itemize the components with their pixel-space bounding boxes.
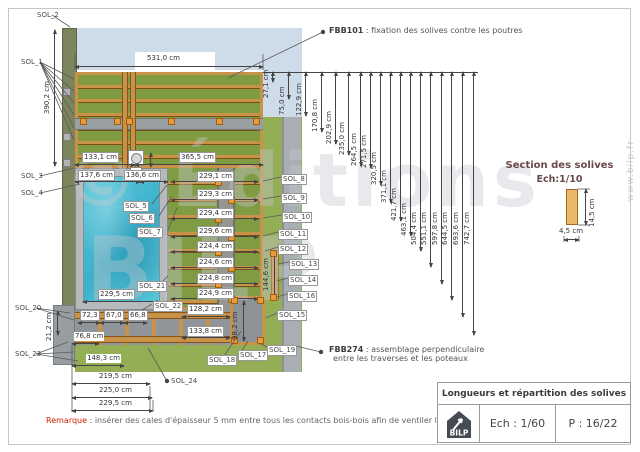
chain-dimension-line: [305, 72, 306, 116]
v-dimension-line: [243, 301, 244, 341]
label-sol_16: SOL_16: [287, 291, 317, 302]
joist-dimension-label: 224,9 cm: [197, 288, 234, 299]
label-sol_21: SOL_21: [137, 281, 167, 292]
watermark-url: www.bilp.fr: [626, 140, 636, 201]
label-sol_7: SOL_7: [137, 227, 163, 238]
chain-dimension-line: [348, 72, 349, 155]
label-sol_24: SOL_24: [170, 377, 198, 386]
label-sol_11: SOL_11: [278, 229, 308, 240]
v-dimension-label: 390,2 cm: [43, 76, 52, 114]
dimension-line: [135, 164, 263, 165]
label-sol_6: SOL_6: [129, 213, 155, 224]
chain-dimension-line: [272, 72, 273, 82]
dimension-label: 148,3 cm: [86, 354, 121, 363]
post-marker: [257, 297, 264, 304]
dimension-label: 4,5 cm: [558, 227, 584, 236]
label-sol_20: SOL_20: [14, 304, 42, 313]
dimension-line: [124, 322, 147, 323]
chain-dimension-line: [288, 72, 289, 99]
v-dimension-label: 144,6 cm: [262, 253, 271, 291]
label-sol_17: SOL_17: [238, 350, 268, 361]
label-sol_8: SOL_8: [281, 174, 307, 185]
chain-dimension-label: 504,4 cm: [410, 201, 419, 245]
section-scale: Ech:1/10: [497, 174, 622, 185]
drawing-title: Longueurs et répartition des solives: [438, 383, 630, 405]
fbb101-note: FBB101 : fixation des solives contre les…: [329, 26, 523, 35]
fbb101-text: : fixation des solives contre les poutre…: [363, 26, 522, 35]
dimension-line: [182, 337, 230, 338]
page-number: P : 16/22: [556, 405, 630, 442]
chain-dimension-label: 75,0 cm: [278, 71, 287, 115]
fbb274-text1: : assemblage perpendiculaire: [363, 345, 484, 354]
label-sol_23: SOL_23: [14, 350, 42, 359]
label-sol_5: SOL_5: [123, 201, 149, 212]
chain-dimension-label: 122,9 cm: [295, 72, 304, 116]
v-dimension-label: 98,2 cm: [231, 302, 240, 340]
v-dimension-line: [150, 153, 151, 167]
dimension-label: 136,6 cm: [124, 170, 161, 181]
label-sol_1: SOL_1: [20, 58, 44, 67]
joist-dimension-label: 229,6 cm: [197, 226, 234, 237]
v-dimension-line: [54, 30, 55, 166]
fbb274-text2: entre les traverses et les poteaux: [329, 354, 468, 363]
label-sol_12: SOL_12: [278, 244, 308, 255]
joist-dimension-label: 229,3 cm: [197, 189, 234, 200]
chain-dimension-label: 235,0 cm: [338, 111, 347, 155]
post-marker: [253, 118, 260, 125]
dimension-line: [72, 343, 99, 344]
dimension-label: 365,5 cm: [179, 152, 216, 163]
joist-dimension-label: 229,4 cm: [197, 208, 234, 219]
v-dimension-label: 21,2 cm: [45, 303, 54, 341]
dimension-line: [72, 410, 153, 411]
dimension-line: [564, 239, 579, 240]
chain-dimension-line: [441, 72, 442, 284]
chain-dimension-label: 202,9 cm: [325, 100, 334, 144]
title-block: Longueurs et répartition des solives BIL…: [437, 382, 631, 443]
chain-dimension-label: 27,1 cm: [262, 54, 271, 98]
chain-dimension-label: 271,5 cm: [360, 124, 369, 168]
label-sol_4: SOL_4: [20, 189, 44, 198]
chain-dimension-line: [462, 72, 463, 317]
label-sol_18: SOL_18: [207, 355, 237, 366]
dimension-line: [75, 181, 140, 182]
label-sol_14: SOL_14: [288, 275, 318, 286]
label-sol_22: SOL_22: [153, 301, 183, 312]
chain-dimension-label: 463,1 cm: [400, 192, 409, 236]
v-dimension-line: [274, 252, 275, 298]
label-sol_13: SOL_13: [289, 259, 319, 270]
post-marker: [270, 250, 277, 257]
dimension-label: 531,0 cm: [146, 54, 181, 63]
v-dimension-line: [585, 189, 586, 225]
drawing-page: Section des solives Ech:1/10 FBB101 : fi…: [0, 0, 640, 452]
joist-dimension-label: 229,1 cm: [197, 171, 234, 182]
section-title: Section des solives: [497, 160, 622, 171]
dimension-label: 128,2 cm: [187, 304, 224, 315]
dimension-line: [78, 322, 100, 323]
chain-dimension-line: [473, 72, 474, 335]
post-marker: [216, 118, 223, 125]
post-marker: [80, 118, 87, 125]
dimension-label: 67,0: [104, 310, 124, 321]
post-marker: [270, 294, 277, 301]
chain-dimension-label: 551,1 cm: [420, 201, 429, 245]
label-sol_10: SOL_10: [282, 212, 312, 223]
dimension-line: [72, 365, 124, 366]
post-marker: [126, 118, 133, 125]
chain-dimension-line: [335, 72, 336, 144]
svg-text:BILP: BILP: [449, 428, 468, 437]
post-marker: [168, 118, 175, 125]
label-sol_19: SOL_19: [267, 345, 297, 356]
chain-dimension-label: 742,7 cm: [463, 201, 472, 245]
dimension-label: 76,8 cm: [74, 332, 104, 341]
dimension-line: [75, 66, 263, 67]
chain-dimension-label: 693,6 cm: [452, 201, 461, 245]
dimension-label: 72,3: [80, 310, 100, 321]
joist-dimension-label: 224,6 cm: [197, 257, 234, 268]
dimension-line: [140, 181, 168, 182]
label-sol_2: SOL_2: [36, 11, 60, 20]
remark-label: Remarque: [46, 416, 87, 425]
dimension-line: [83, 301, 160, 302]
label-sol_15: SOL_15: [277, 310, 307, 321]
fbb274-note: FBB274 : assemblage perpendiculaireentre…: [329, 345, 484, 363]
chain-dimension-label: 264,5 cm: [350, 122, 359, 166]
chain-dimension-label: 170,8 cm: [311, 88, 320, 132]
dimension-line: [75, 164, 135, 165]
bilp-logo-icon: BILP: [445, 409, 473, 439]
dimension-label: 229,5 cm: [98, 399, 133, 408]
post-marker: [114, 118, 121, 125]
joist-dimension-label: 224,4 cm: [197, 241, 234, 252]
chain-dimension-line: [451, 72, 452, 300]
chain-dimension-label: 644,5 cm: [441, 201, 450, 245]
dimension-label: 133,1 cm: [82, 152, 119, 163]
label-sol_9: SOL_9: [281, 193, 307, 204]
dimension-label: 133,8 cm: [187, 326, 224, 337]
chain-dimension-line: [321, 72, 322, 132]
chain-dimension-label: 320,5 cm: [370, 141, 379, 185]
scale-value: Ech : 1/60: [480, 405, 556, 442]
post-marker: [257, 337, 264, 344]
dimension-line: [72, 383, 150, 384]
dimension-label: 229,5 cm: [98, 289, 135, 300]
dimension-label: 137,6 cm: [78, 170, 115, 181]
chain-dimension-label: 421,7 cm: [390, 177, 399, 221]
v-dimension-label: 14,5 cm: [588, 189, 597, 227]
chain-dimension-label: 597,8 cm: [431, 201, 440, 245]
bilp-logo: BILP: [438, 405, 480, 442]
dimension-line: [182, 316, 230, 317]
dimension-label: 225,0 cm: [98, 386, 133, 395]
joist-cross-section: [566, 189, 578, 225]
dimension-line: [100, 322, 124, 323]
label-sol_3: SOL_3: [20, 172, 44, 181]
v-dimension-line: [57, 311, 58, 335]
chain-dimension-label: 371,1 cm: [380, 159, 389, 203]
joist-dimension-label: 224,8 cm: [197, 273, 234, 284]
dimension-line: [72, 397, 152, 398]
fbb101-code: FBB101: [329, 26, 363, 35]
dimension-label: 219,5 cm: [98, 372, 133, 381]
fbb274-code: FBB274: [329, 345, 363, 354]
dimension-label: 66,8: [128, 310, 148, 321]
remark-text: : insérer des cales d'épaisseur 5 mm ent…: [87, 416, 481, 425]
